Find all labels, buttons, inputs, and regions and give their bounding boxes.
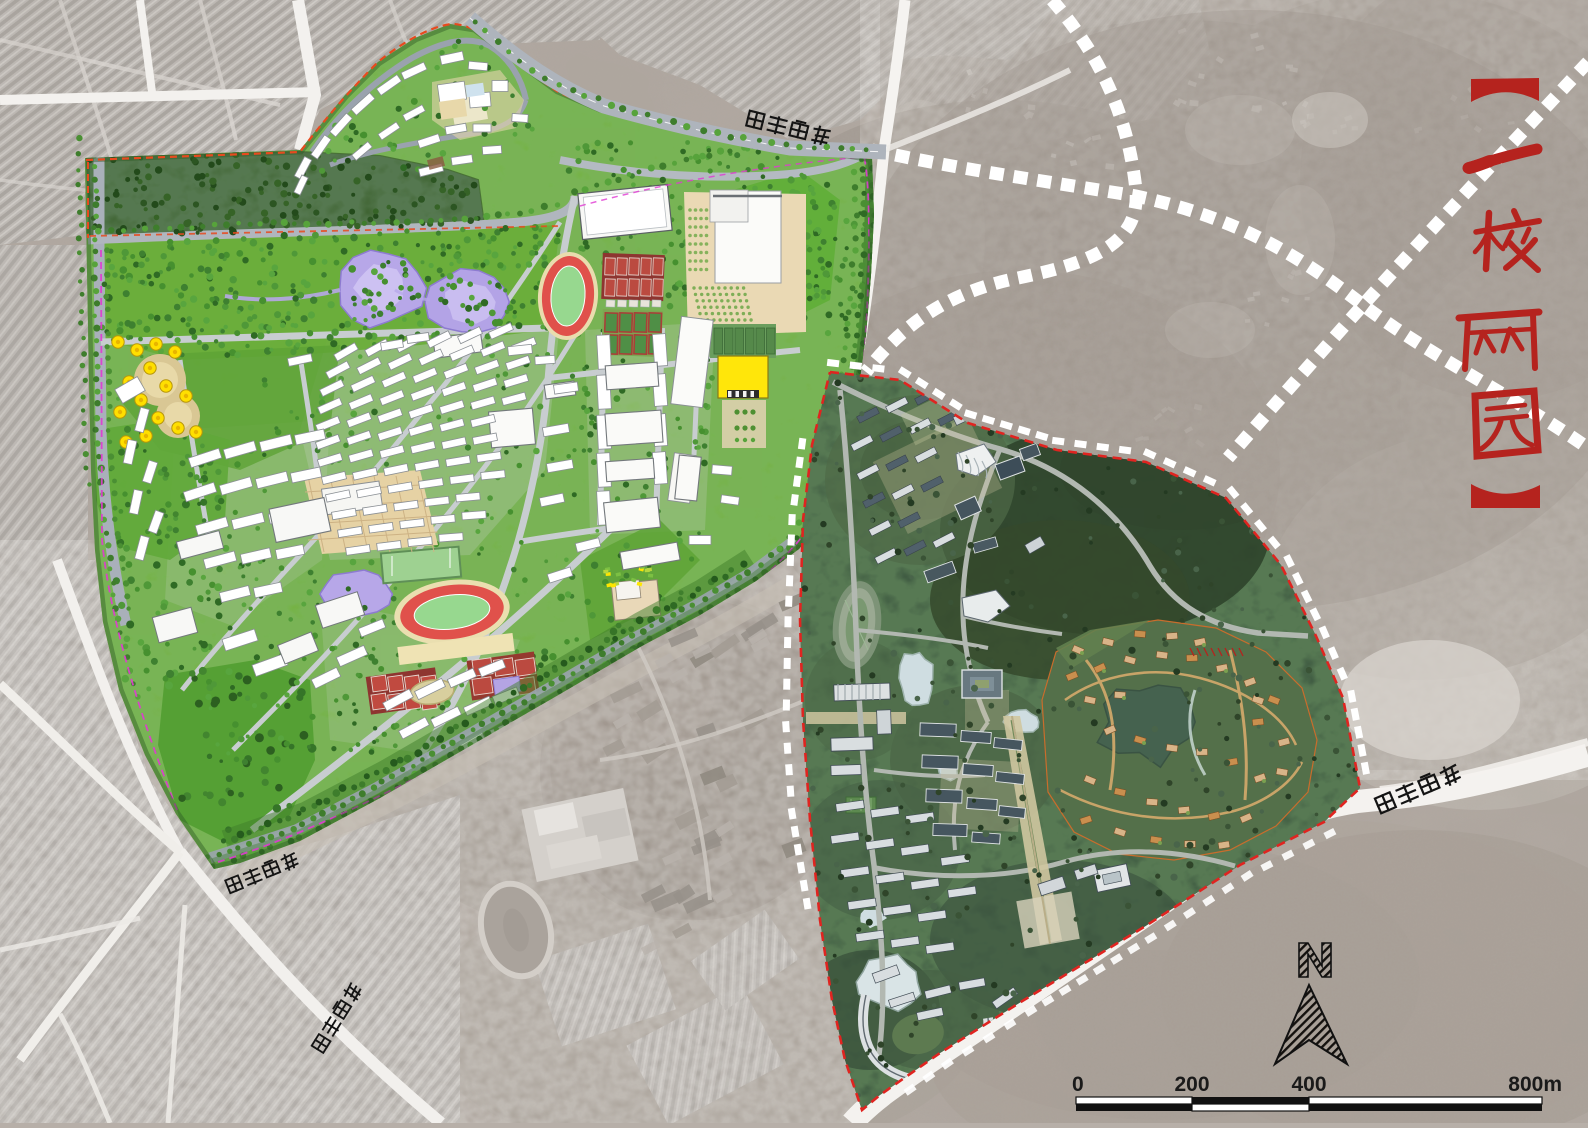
svg-text:200: 200 [1174, 1073, 1209, 1096]
svg-text:400: 400 [1291, 1073, 1326, 1096]
svg-text:0: 0 [1072, 1073, 1084, 1096]
svg-text:800m: 800m [1508, 1073, 1562, 1096]
